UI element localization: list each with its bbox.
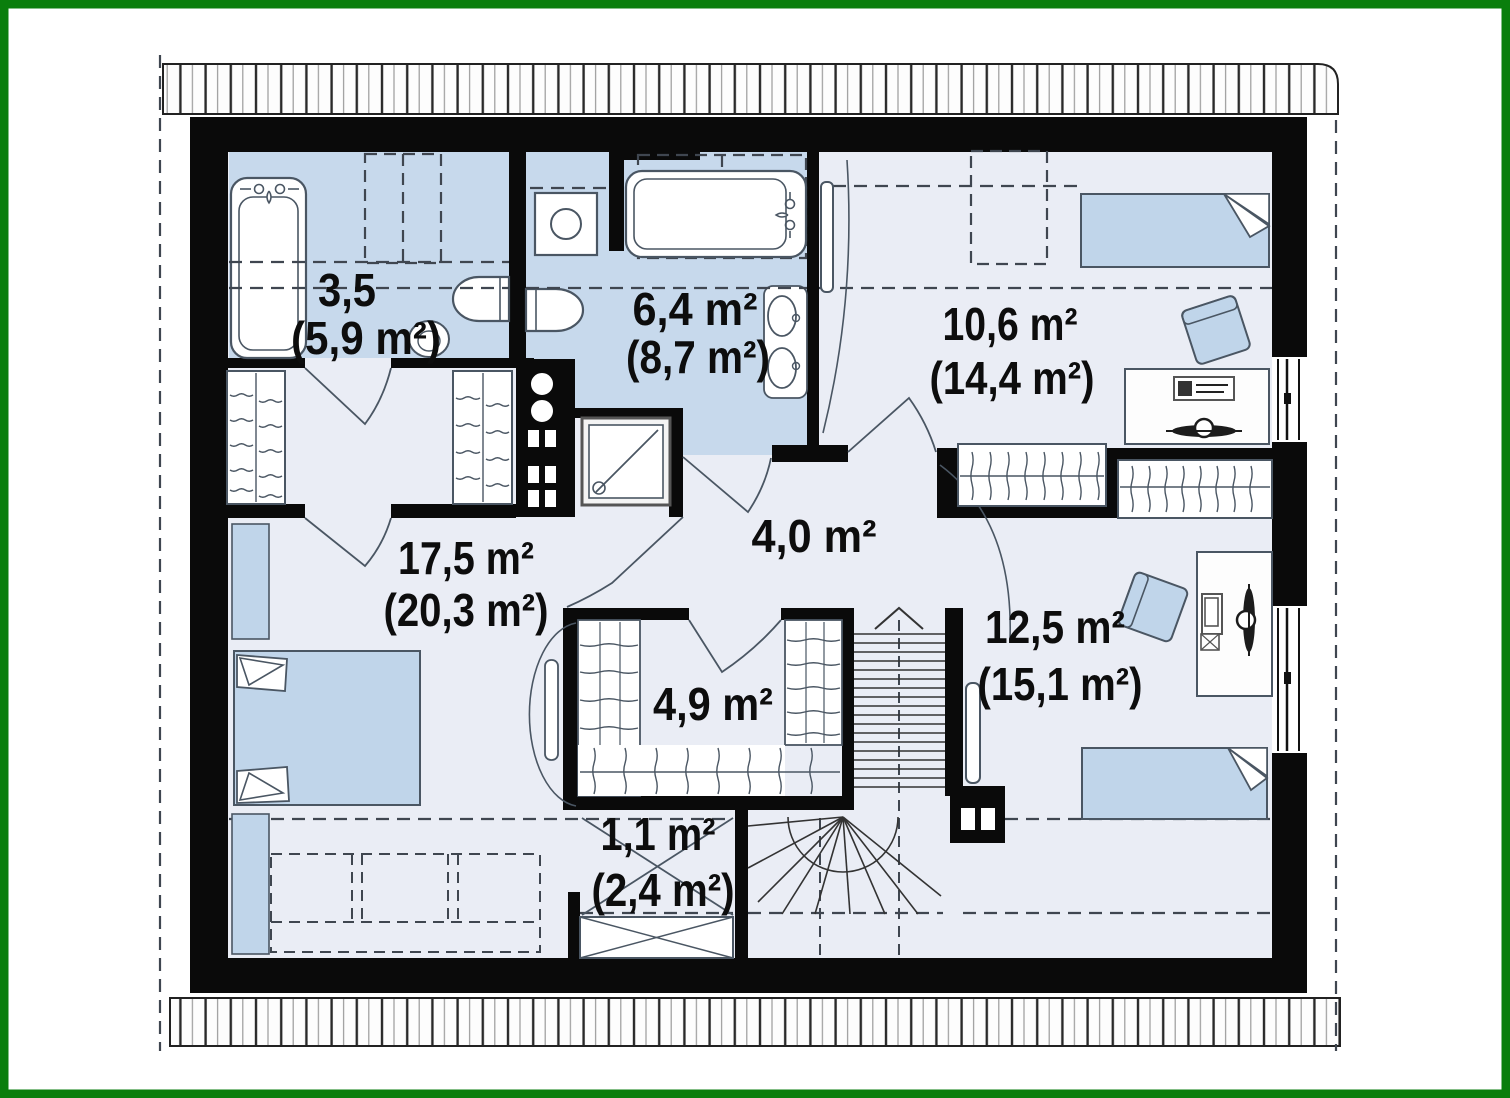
svg-text:(5,9 m²): (5,9 m²)	[291, 312, 441, 364]
svg-text:(20,3 m²): (20,3 m²)	[384, 584, 549, 636]
svg-text:6,4 m²: 6,4 m²	[633, 283, 758, 335]
svg-text:12,5 m²: 12,5 m²	[985, 601, 1125, 653]
svg-text:3,5: 3,5	[318, 264, 376, 316]
svg-text:1,1 m²: 1,1 m²	[601, 808, 716, 860]
svg-text:4,9 m²: 4,9 m²	[653, 678, 773, 730]
svg-text:(8,7 m²): (8,7 m²)	[626, 331, 770, 383]
svg-text:4,0 m²: 4,0 m²	[752, 510, 877, 562]
svg-text:(2,4 m²): (2,4 m²)	[592, 864, 735, 916]
svg-text:(14,4 m²): (14,4 m²)	[930, 352, 1095, 404]
svg-text:(15,1 m²): (15,1 m²)	[978, 658, 1143, 710]
svg-text:10,6 m²: 10,6 m²	[943, 298, 1078, 350]
svg-text:17,5 m²: 17,5 m²	[398, 532, 534, 584]
